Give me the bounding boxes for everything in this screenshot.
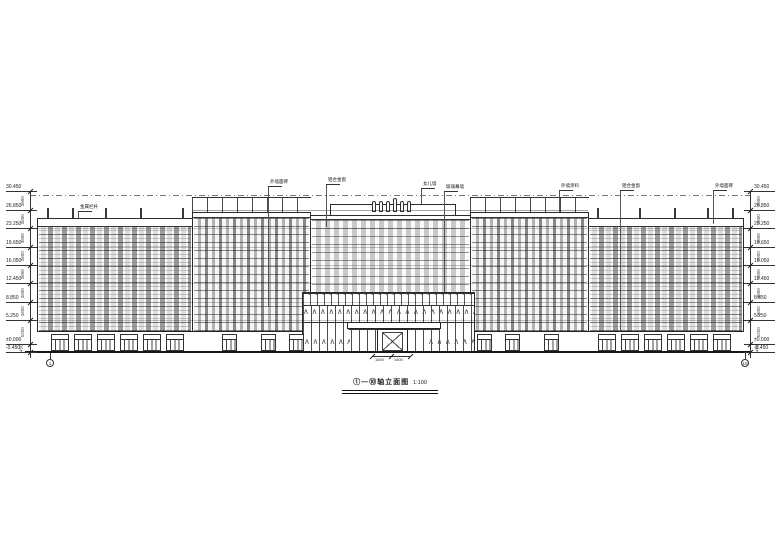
- callout-leader: [421, 188, 422, 204]
- wing-right-windows: [590, 227, 742, 331]
- callout-text: 外墙涂料: [561, 184, 579, 189]
- storefront-door-group: [222, 334, 237, 351]
- wing-left-cornice: [37, 226, 193, 227]
- tall-right-cornice: [470, 217, 589, 218]
- title-block: ①—⑩轴立面图1:100: [0, 371, 780, 394]
- callout-text: 玻璃幕墙: [446, 185, 464, 190]
- floor-line: [37, 228, 744, 229]
- level-label-right: 23.250: [754, 222, 769, 227]
- dim-segment-left: 3600: [21, 214, 26, 224]
- door-leaves: [506, 340, 519, 350]
- wing-right-cornice: [588, 226, 744, 227]
- floor-line: [37, 302, 744, 303]
- title-underline: [342, 390, 438, 394]
- level-leader-left: [6, 352, 37, 353]
- center-cornice: [310, 219, 471, 220]
- dim-segment-left: 3600: [21, 288, 26, 298]
- callout-text: 金属栏杆: [80, 205, 98, 210]
- axis-bubble-right: 10: [741, 359, 749, 367]
- door-leaves: [75, 340, 91, 350]
- drawing-title: ①—⑩轴立面图: [353, 379, 409, 386]
- storefront-door-group: [97, 334, 115, 351]
- level-label-left: 5.250: [6, 314, 19, 319]
- level-label-left: 23.250: [6, 222, 21, 227]
- door-leaves: [167, 340, 183, 350]
- parapet-stub-post: [182, 208, 184, 218]
- storefront-door-group: [667, 334, 685, 351]
- parapet-stub-post: [639, 208, 641, 218]
- dim-chain-line-right: [750, 191, 751, 358]
- storefront-door-group: [477, 334, 492, 351]
- floor-line: [37, 247, 744, 248]
- dim-chain-line-left: [30, 191, 31, 358]
- level-label-left: 12.450: [6, 277, 21, 282]
- door-leaves: [545, 340, 558, 350]
- callout-flag-bar: [713, 190, 727, 191]
- dim-segment-left: 3600: [21, 269, 26, 279]
- door-leaves: [691, 340, 707, 350]
- tall-block-left-windows: [194, 217, 309, 331]
- drawing-scale: 1:100: [413, 380, 427, 386]
- callout-leader: [326, 184, 327, 227]
- door-leaves: [223, 340, 236, 350]
- callout-text: 铝合金窗: [622, 184, 640, 189]
- door-leaves: [645, 340, 661, 350]
- door-leaves: [622, 340, 638, 350]
- door-leaves: [478, 340, 491, 350]
- callout-leader: [559, 190, 560, 212]
- level-leader-left: [6, 283, 37, 284]
- entrance-canopy: [347, 322, 441, 329]
- callout-leader: [444, 191, 445, 292]
- axis-bubble-left: 1: [46, 359, 54, 367]
- storefront-door-group: [598, 334, 616, 351]
- tall-block-right-windows: [472, 217, 587, 331]
- parapet-stub-post: [732, 208, 734, 218]
- wing-left-windows: [39, 227, 191, 331]
- podium-dot-band: [303, 293, 474, 306]
- floor-line: [37, 283, 744, 284]
- door-leaves: [599, 340, 615, 350]
- storefront-door-group: [120, 334, 138, 351]
- level-label-right: 30.450: [754, 185, 769, 190]
- level-leader-left: [6, 265, 37, 266]
- level-label-right: -0.450: [754, 346, 768, 351]
- ground-line: [25, 351, 752, 353]
- level-label-left: 26.850: [6, 204, 21, 209]
- storefront-door-group: [644, 334, 662, 351]
- parapet-stub-post: [140, 208, 142, 218]
- level-label-right: 12.450: [754, 277, 769, 282]
- callout-text: 女儿墙: [423, 182, 437, 187]
- storefront-door-group: [713, 334, 731, 351]
- callout-flag-bar: [78, 211, 92, 212]
- callout-flag-bar: [268, 186, 282, 187]
- entrance-dim-num: 1800: [394, 358, 403, 362]
- storefront-door-group: [143, 334, 161, 351]
- parapet-stub-post: [707, 208, 709, 218]
- storefront-door-group: [505, 334, 520, 351]
- callout-text: 外墙面砖: [715, 184, 733, 189]
- dim-segment-left: 3600: [21, 306, 26, 316]
- level-leader-left: [6, 191, 37, 192]
- door-leaves: [52, 340, 68, 350]
- door-leaves: [121, 340, 137, 350]
- door-leaves: [714, 340, 730, 350]
- storefront-door-group: [166, 334, 184, 351]
- level-leader-left: [6, 302, 37, 303]
- door-leaves: [98, 340, 114, 350]
- door-leaves: [144, 340, 160, 350]
- podium-lower-arches-left: ∧∧∧∧∧∧: [304, 336, 350, 349]
- parapet-stub-post: [72, 208, 74, 218]
- storefront-door-group: [690, 334, 708, 351]
- dim-segment-left: 3600: [21, 251, 26, 261]
- callout-flag-bar: [326, 184, 340, 185]
- entrance-dim-num: 1800: [375, 358, 384, 362]
- callout-leader: [620, 190, 621, 331]
- level-leader-left: [6, 210, 37, 211]
- level-label-right: 19.650: [754, 241, 769, 246]
- center-windows: [312, 219, 469, 293]
- floor-line: [37, 265, 744, 266]
- level-label-left: 30.450: [6, 185, 21, 190]
- level-leader-left: [6, 228, 37, 229]
- level-label-right: 8.850: [754, 296, 767, 301]
- dim-segment-left: 5250: [21, 327, 26, 337]
- level-label-left: -0.450: [6, 346, 20, 351]
- parapet-stub-post: [674, 208, 676, 218]
- callout-leader: [713, 190, 714, 224]
- parapet-stub-post: [47, 208, 49, 218]
- callout-flag-bar: [444, 191, 458, 192]
- callout-flag-bar: [421, 188, 435, 189]
- door-leaves: [262, 340, 275, 350]
- storefront-door-group: [621, 334, 639, 351]
- floor-line: [37, 320, 744, 321]
- storefront-door-group: [74, 334, 92, 351]
- drawing-sheet: ∧∧∧∧∧∧∧∧∧∧∧∧∧∧∧∧∧∧∧∧∧∧∧ ∧∧∧∧∧∧ ∧∧∧∧∧∧ 30…: [0, 0, 780, 551]
- tall-left-cornice: [192, 217, 311, 218]
- level-label-left: 8.850: [6, 296, 19, 301]
- roof-level-line: [30, 195, 750, 196]
- storefront-door-group: [544, 334, 559, 351]
- level-label-right: 16.050: [754, 259, 769, 264]
- callout-flag-bar: [620, 190, 634, 191]
- level-label-right: ±0.000: [754, 338, 769, 343]
- storefront-door-group: [289, 334, 304, 351]
- level-label-right: 26.850: [754, 204, 769, 209]
- callout-leader: [268, 186, 269, 306]
- door-leaves: [668, 340, 684, 350]
- dim-segment-left: 3600: [21, 233, 26, 243]
- callout-text: 外墙面砖: [270, 180, 288, 185]
- parapet-stub-post: [105, 208, 107, 218]
- level-leader-left: [6, 320, 37, 321]
- floor-line: [192, 210, 588, 211]
- storefront-door-group: [261, 334, 276, 351]
- level-label-left: ±0.000: [6, 338, 21, 343]
- podium-lower-arches-right: ∧∧∧∧∧∧: [428, 336, 474, 349]
- entrance-dim-tick: [408, 354, 414, 360]
- door-leaves: [290, 340, 303, 350]
- storefront-door-group: [51, 334, 69, 351]
- callout-flag-bar: [559, 190, 573, 191]
- dim-segment-right: 5250: [757, 327, 762, 337]
- level-leader-left: [6, 247, 37, 248]
- elevation-drawing: ∧∧∧∧∧∧∧∧∧∧∧∧∧∧∧∧∧∧∧∧∧∧∧ ∧∧∧∧∧∧ ∧∧∧∧∧∧ 30…: [0, 0, 780, 551]
- entrance-door-glass: [382, 332, 403, 351]
- level-label-right: 5.250: [754, 314, 767, 319]
- callout-text: 铝合金窗: [328, 178, 346, 183]
- dim-segment-left: 3600: [21, 196, 26, 206]
- callout-leader: [78, 211, 79, 218]
- level-label-left: 19.650: [6, 241, 21, 246]
- level-label-left: 16.050: [6, 259, 21, 264]
- parapet-stub-post: [597, 208, 599, 218]
